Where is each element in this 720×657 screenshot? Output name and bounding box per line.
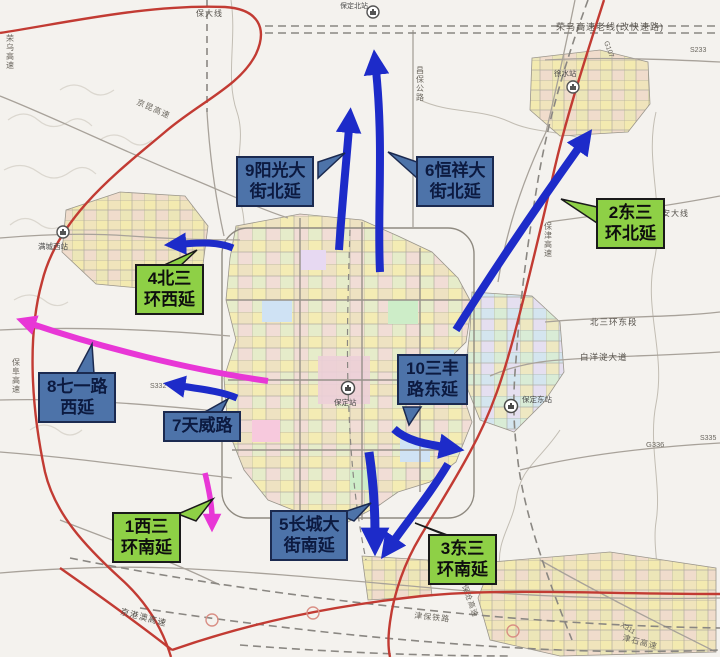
road-label-rongwu: 荣乌高速 [6,33,15,70]
road-label-g336: G336 [646,440,664,449]
callout-line: 路东延 [406,380,459,401]
station-icon-baoding-north [367,6,379,18]
road-label-s335: S335 [700,435,716,442]
station-icon-mancheng-west [57,226,69,238]
callout-line: 8七一路 [47,377,107,398]
road-label-baoda: 保大线 [196,8,223,18]
callout-line: 4北三 [144,269,195,290]
callout-8-qiyi-west: 8七一路 西延 [38,372,116,423]
callout-line: 2东三 [605,203,656,224]
callout-2-east-ring-north: 2东三 环北延 [596,198,665,249]
station-label-baoding-north: 保定北站 [340,1,368,10]
callout-line: 9阳光大 [245,161,305,182]
callout-line: 5长城大 [279,515,339,536]
station-label-baoding-east: 保定东站 [522,394,552,404]
town-south [478,552,716,656]
callout-line: 环南延 [121,538,172,559]
callout-3-east-ring-south: 3东三 环南延 [428,534,497,585]
station-label-baoding: 保定站 [334,397,357,407]
callout-line: 街北延 [245,182,305,203]
callout-1-west-ring-south: 1西三 环南延 [112,512,181,563]
callout-line: 西延 [47,398,107,419]
map-canvas: 荣乌高速 保大线 荣乌高速老线(改快速路) S233 G107 安大线 昌保公路… [0,0,720,657]
callout-line: 环南延 [437,560,488,581]
road-label-changbao: 昌保公路 [416,66,425,102]
callout-line: 6恒祥大 [425,161,485,182]
callout-7-tianwei: 7天威路 [163,411,241,442]
callout-line: 环西延 [144,290,195,311]
callout-line: 3东三 [437,539,488,560]
station-icon-baoding-east [505,400,518,413]
station-icon-xushui [567,81,579,93]
planning-map: 荣乌高速 保大线 荣乌高速老线(改快速路) S233 G107 安大线 昌保公路… [0,0,720,657]
callout-4-north-ring-west: 4北三 环西延 [135,264,204,315]
callout-9-yangguang: 9阳光大 街北延 [236,156,314,207]
road-label-rongwu-old: 荣乌高速老线(改快速路) [556,21,664,32]
station-label-mancheng-west: 满城西站 [38,241,68,251]
callout-6-hengxiang: 6恒祥大 街北延 [416,156,494,207]
callout-line: 10三丰 [406,359,459,380]
station-icon-baoding [342,382,355,395]
callout-10-sanfeng-east: 10三丰 路东延 [397,354,468,405]
callout-5-changcheng-south: 5长城大 街南延 [270,510,348,561]
road-label-s332: S332 [150,383,166,390]
road-label-baojin: 保津高速 [544,221,553,258]
station-label-xushui: 徐水站 [554,68,577,78]
road-label-beisanhuan-east: 北三环东段 [590,317,638,327]
callout-line: 7天威路 [172,416,232,437]
callout-line: 街北延 [425,182,485,203]
road-label-anda: 安大线 [662,208,689,218]
road-label-baofu: 保阜高速 [12,357,21,394]
callout-line: 街南延 [279,536,339,557]
callout-line: 1西三 [121,517,172,538]
arrow-6-hengxiang-north [376,70,380,272]
callout-line: 环北延 [605,224,656,245]
road-label-baiyangdian: 白洋淀大道 [580,352,628,362]
road-label-s233: S233 [690,47,706,54]
